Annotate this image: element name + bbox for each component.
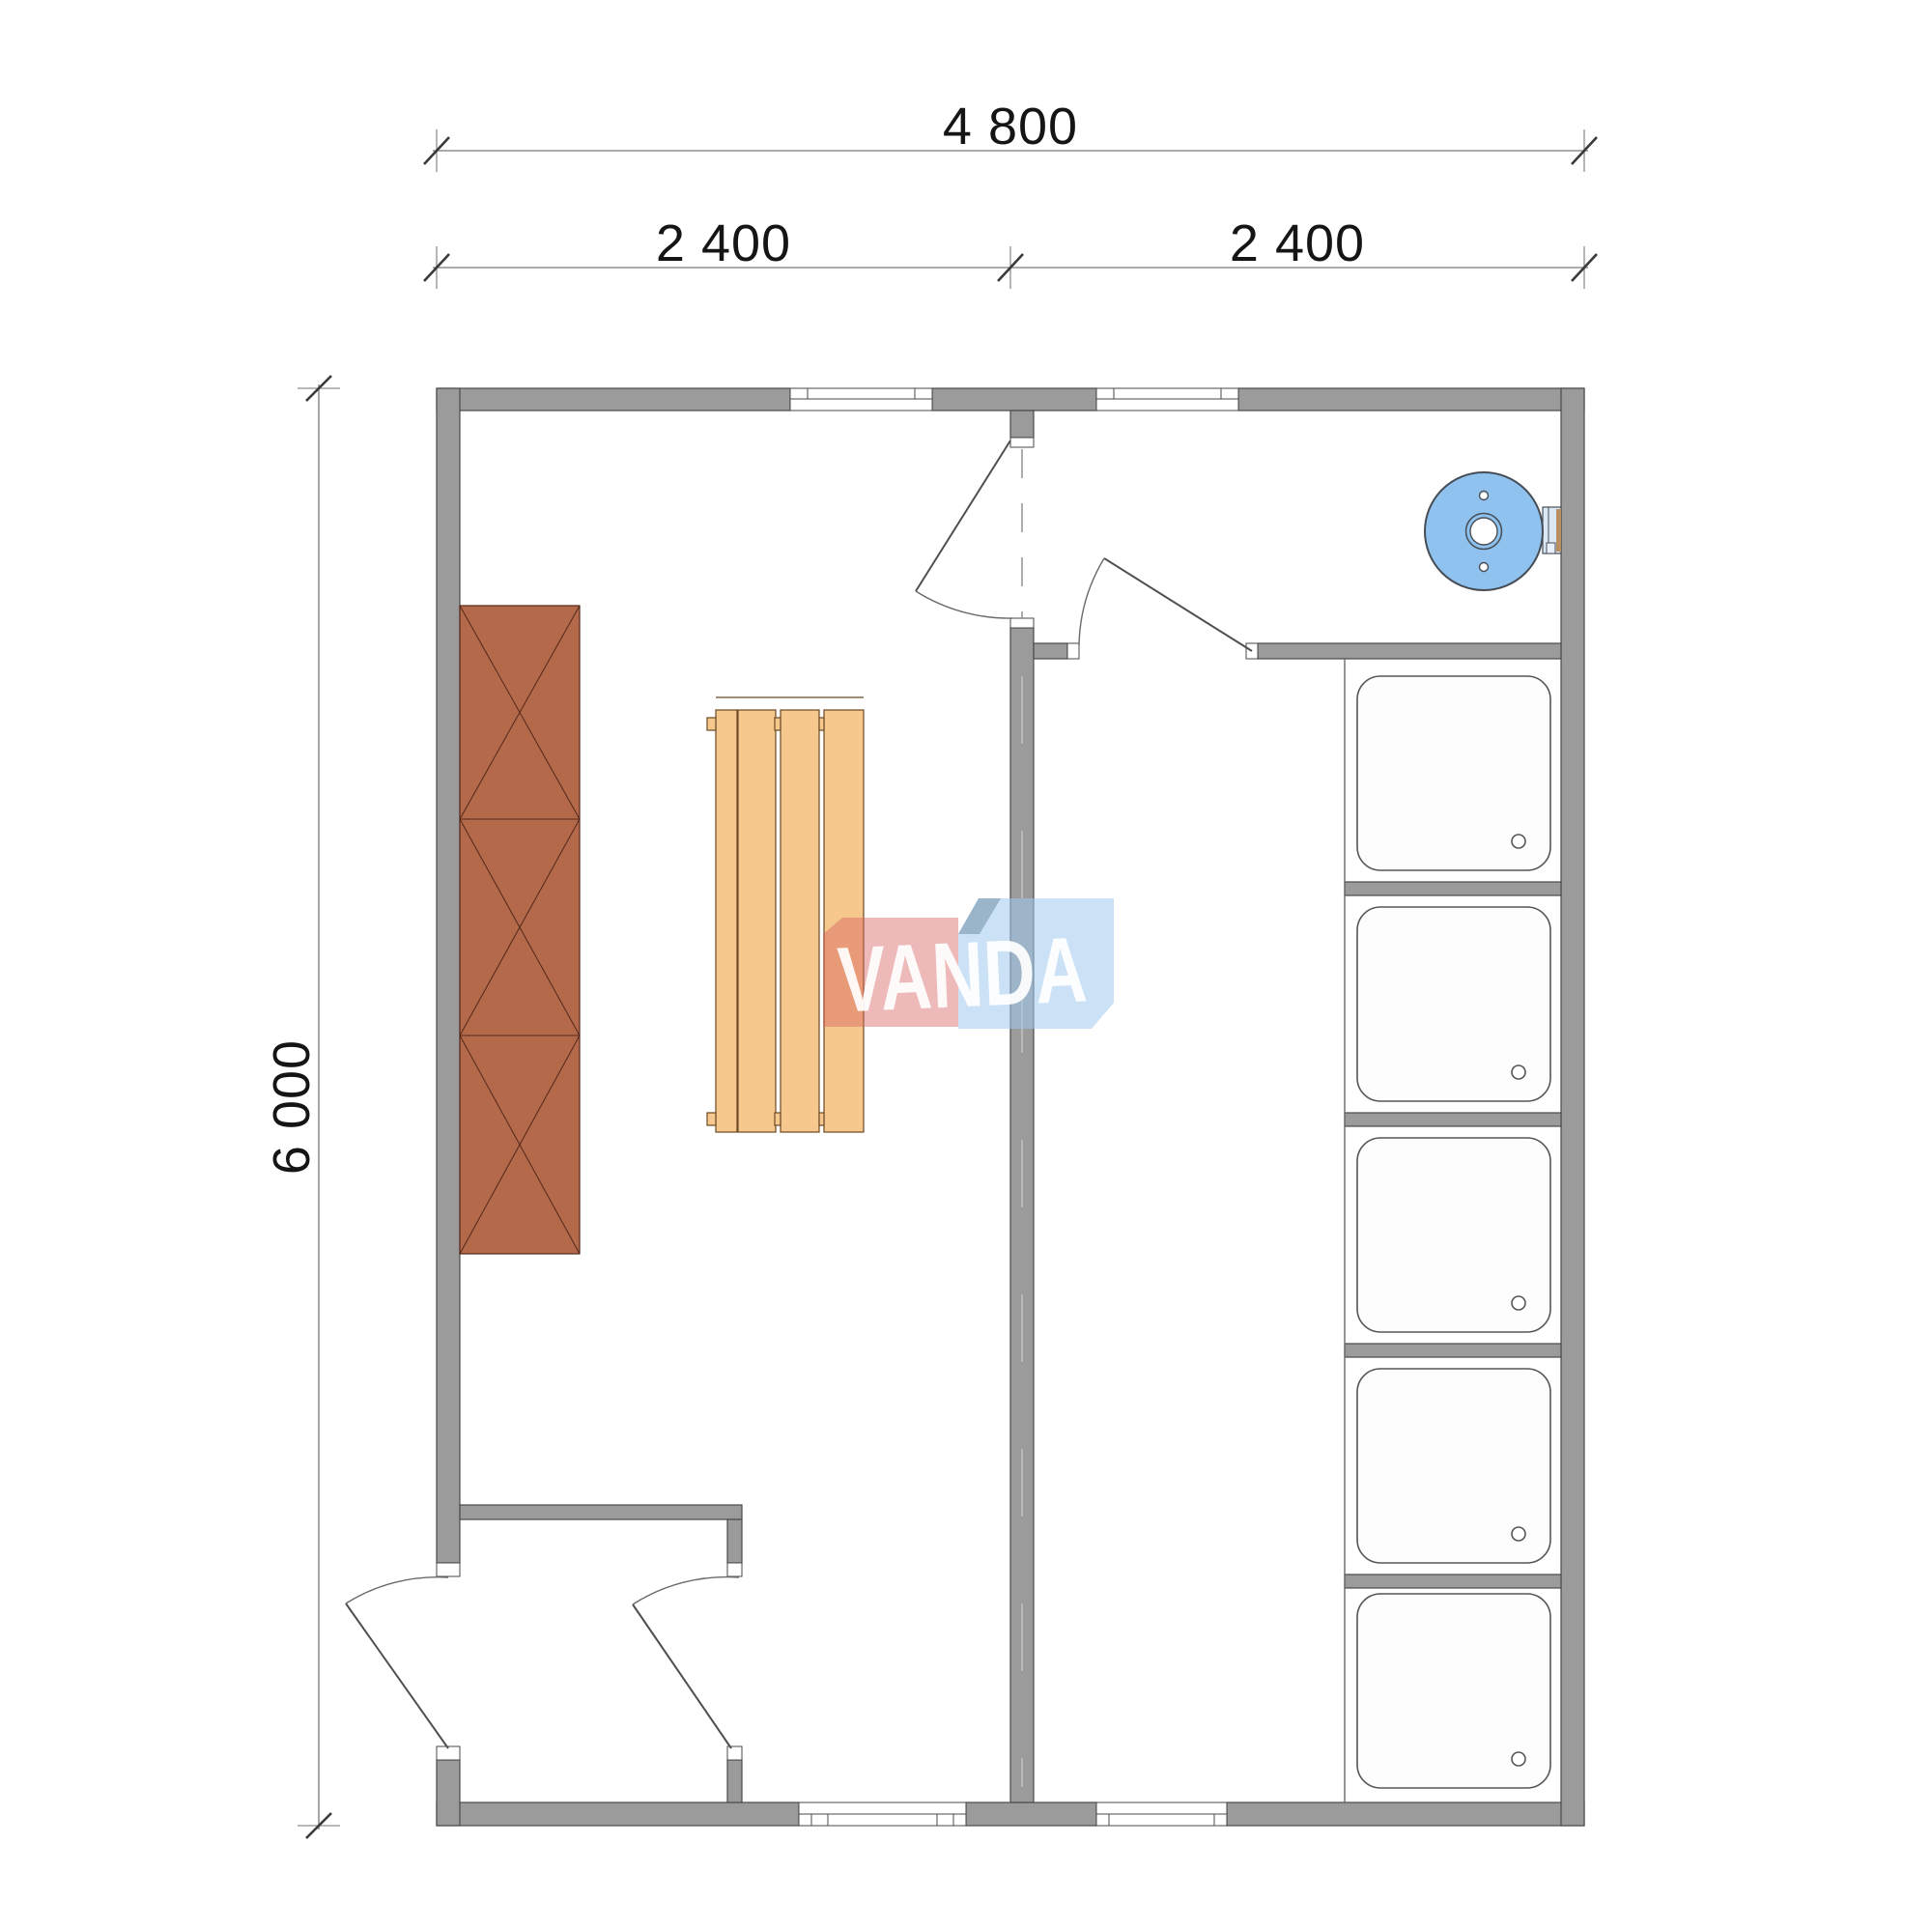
corridor-wall-segment <box>1034 643 1067 659</box>
drain-icon <box>1512 1065 1525 1079</box>
door-leaf <box>633 1604 731 1748</box>
door-leaf <box>1104 558 1252 651</box>
door-partition <box>916 440 1022 618</box>
shower-divider-wall <box>1345 1574 1561 1588</box>
shower-tray <box>1357 676 1550 870</box>
bench-cleat <box>707 718 716 730</box>
shower-tray <box>1357 1138 1550 1332</box>
door-vestibule <box>633 1577 739 1748</box>
door-swing-arc <box>916 591 1012 618</box>
shower-tray <box>1357 1594 1550 1788</box>
cabinet-body <box>460 606 580 1254</box>
window-top-right <box>1096 388 1238 411</box>
dimension-side-total: 6 000 <box>263 376 340 1838</box>
shower-tray <box>1357 907 1550 1101</box>
drain-icon <box>1512 1527 1525 1541</box>
bench-cleat <box>819 1113 824 1125</box>
bench-slat <box>738 710 776 1132</box>
bench-slat <box>716 710 737 1132</box>
dimension-top-spans: 2 400 2 400 <box>424 214 1597 289</box>
door-jamb <box>1010 438 1034 447</box>
vanda-watermark: VANDA <box>823 898 1114 1033</box>
dimension-top-total: 4 800 <box>424 98 1597 172</box>
bench <box>707 697 864 1132</box>
heater-center <box>1470 518 1497 545</box>
wall-segment <box>437 1802 799 1826</box>
window-top-left <box>790 388 932 411</box>
dimension-label-total-height: 6 000 <box>263 1039 321 1175</box>
wall-segment <box>966 1802 1096 1826</box>
shower-divider-wall <box>1345 1344 1561 1357</box>
door-jamb <box>437 1563 460 1576</box>
heater-bolt <box>1480 563 1489 572</box>
wall-segment <box>932 388 1096 411</box>
bench-cleat <box>707 1113 716 1125</box>
shower-trays <box>1357 676 1550 1788</box>
door-swing-arc <box>346 1577 448 1603</box>
dimension-label-left-span: 2 400 <box>656 214 791 272</box>
wall-segment <box>437 388 460 1563</box>
door-jamb <box>727 1746 742 1760</box>
vestibule-wall-segment <box>727 1760 742 1802</box>
connector-gasket <box>1556 509 1561 552</box>
window-bottom-right <box>1096 1802 1227 1826</box>
door-jamb <box>727 1563 742 1576</box>
shower-divider-wall <box>1345 1113 1561 1126</box>
door-leaf <box>916 440 1010 591</box>
wall-segment <box>437 1760 460 1826</box>
drain-icon <box>1512 1752 1525 1766</box>
door-swing-arc <box>633 1577 739 1604</box>
wall-segment <box>1561 388 1584 1826</box>
door-jamb <box>1010 618 1034 628</box>
partition-stub <box>1010 411 1034 438</box>
door-exterior <box>346 1577 448 1748</box>
window-bottom-left <box>799 1802 966 1826</box>
vestibule-wall-top <box>460 1505 742 1519</box>
water-heater <box>1425 472 1561 590</box>
shower-tray <box>1357 1369 1550 1563</box>
dimension-label-total-width: 4 800 <box>943 98 1078 156</box>
drain-icon <box>1512 835 1525 848</box>
door-corridor-shower <box>1079 558 1252 651</box>
cabinet <box>460 606 580 1254</box>
drain-icon <box>1512 1296 1525 1310</box>
floor-plan-page: 4 800 2 400 2 400 6 000 <box>0 0 1932 1929</box>
corridor-wall-segment <box>1258 643 1561 659</box>
vestibule-wall-segment <box>727 1519 742 1563</box>
door-leaf <box>346 1603 448 1748</box>
door-jamb <box>437 1746 460 1760</box>
bench-cleat <box>775 1113 781 1125</box>
shower-divider-wall <box>1345 882 1561 895</box>
dimension-label-right-span: 2 400 <box>1230 214 1365 272</box>
floor-plan-drawing: 4 800 2 400 2 400 6 000 <box>0 0 1932 1929</box>
heater-bolt <box>1480 492 1489 500</box>
bench-slat <box>781 710 819 1132</box>
bench-cleat <box>775 718 781 730</box>
door-swing-arc <box>1079 558 1104 645</box>
wall-segment <box>1227 1802 1584 1826</box>
watermark-text: VANDA <box>836 918 1089 1032</box>
bench-cleat <box>819 718 824 730</box>
wall-segment <box>437 388 790 411</box>
door-jamb <box>1067 643 1079 659</box>
wall-segment <box>1238 388 1584 411</box>
connector-notch <box>1547 543 1555 553</box>
